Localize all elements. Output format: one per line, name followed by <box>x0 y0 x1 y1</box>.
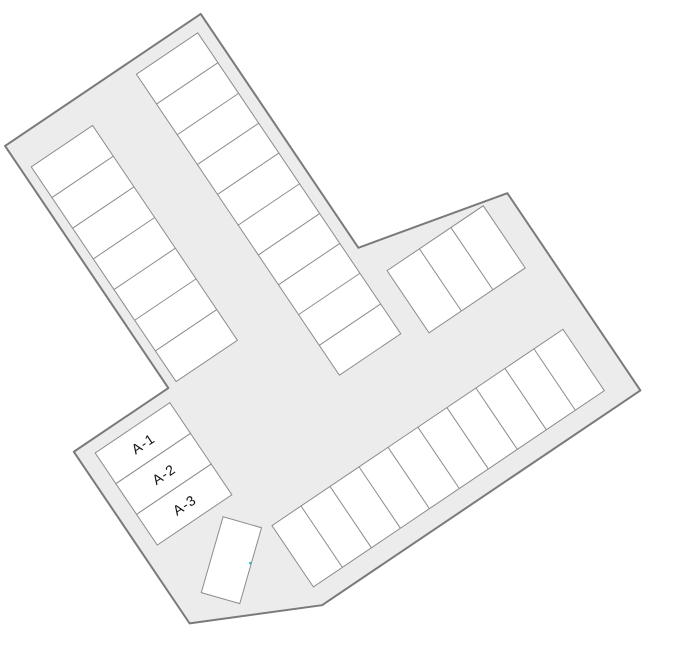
lot-rotation-group: A-1 A-2 A-3 <box>0 0 640 649</box>
parking-lot-map: A-1 A-2 A-3 <box>0 0 699 649</box>
parking-map-page: A-1 A-2 A-3 <box>0 0 699 649</box>
